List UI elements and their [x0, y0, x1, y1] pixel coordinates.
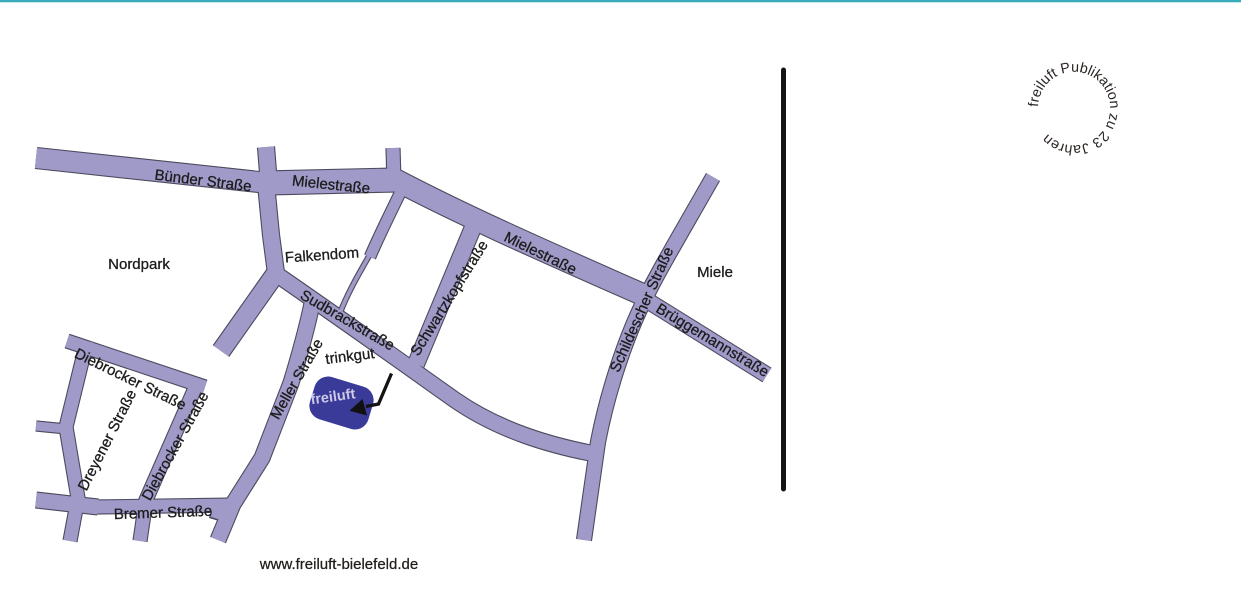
svg-text:Nordpark: Nordpark	[108, 256, 170, 273]
svg-text:www.freiluft-bielefeld.de: www.freiluft-bielefeld.de	[259, 556, 418, 573]
svg-text:Bremer Straße: Bremer Straße	[114, 503, 213, 523]
svg-text:Miele: Miele	[697, 264, 733, 281]
